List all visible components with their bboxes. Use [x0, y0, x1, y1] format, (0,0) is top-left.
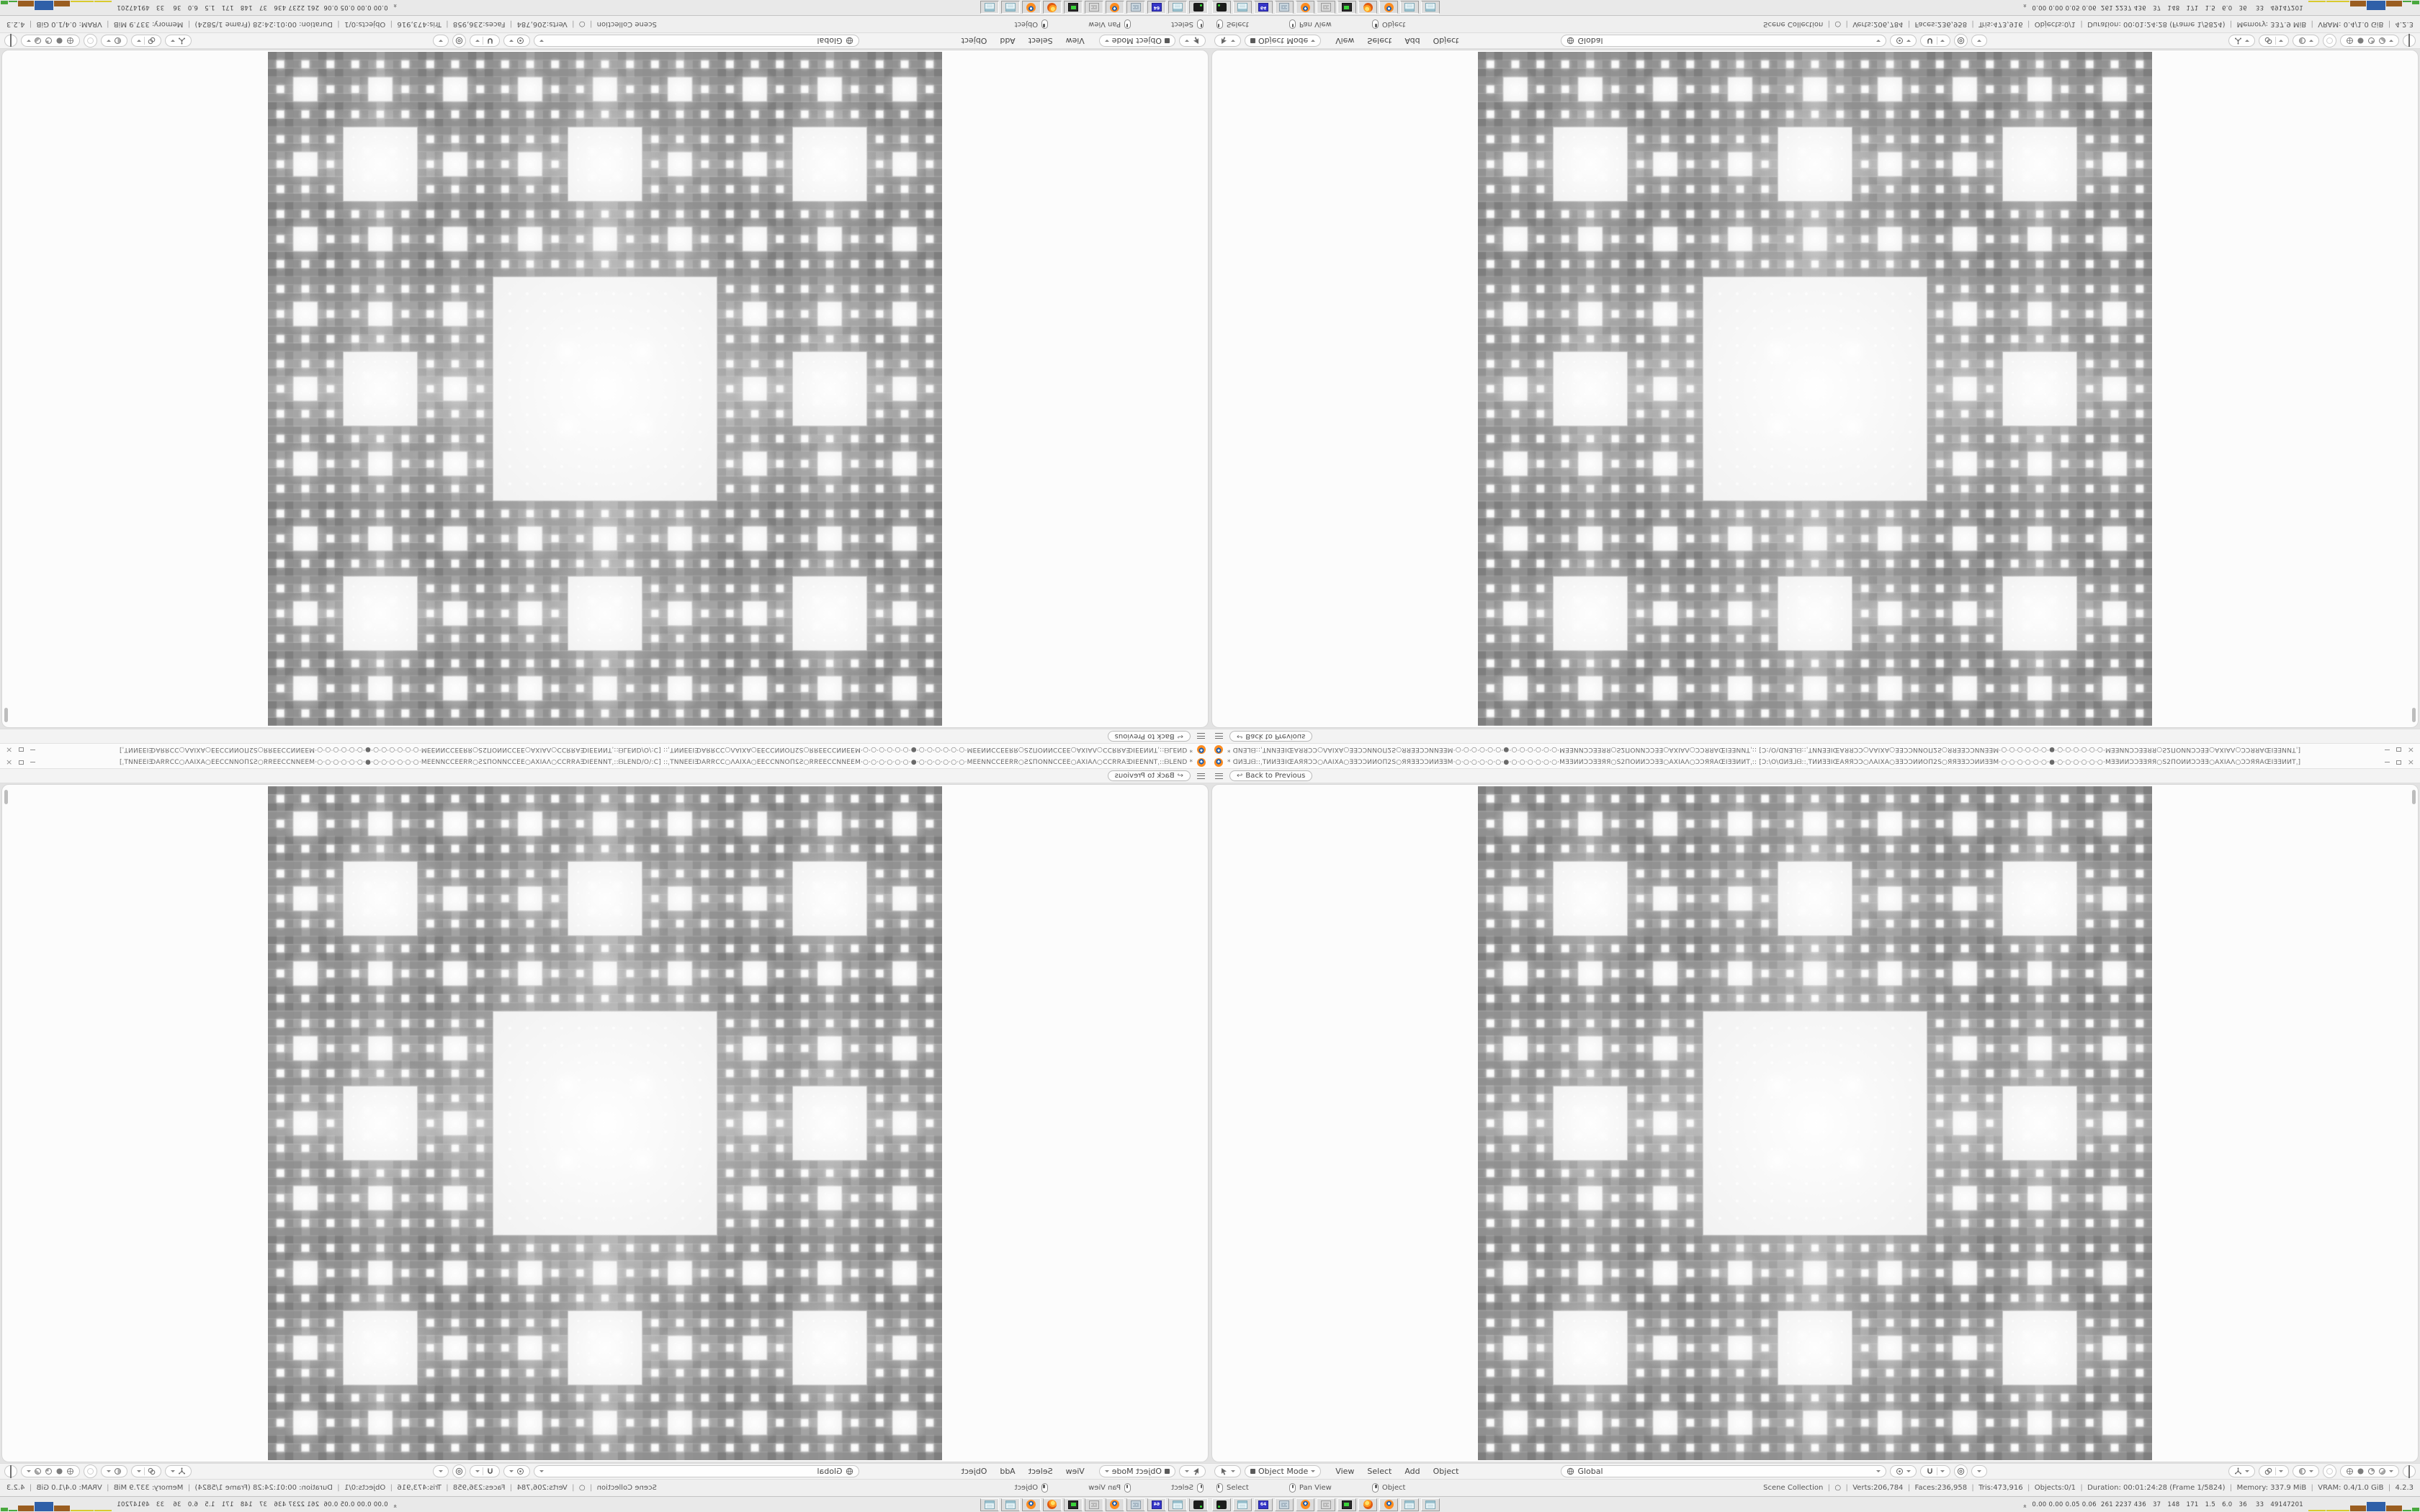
- back-arrow-icon: ↩: [1178, 733, 1183, 740]
- hamburger-menu-icon[interactable]: [1215, 734, 1223, 739]
- calculator-grey-icon: [1321, 1500, 1331, 1509]
- taskbar-calculator-blue-button[interactable]: [1126, 1498, 1145, 1511]
- profiler-bar: [71, 1510, 94, 1511]
- mouse-hint-select: Select: [1216, 19, 1249, 29]
- close-button[interactable]: ×: [2408, 747, 2414, 754]
- xray-dropdown[interactable]: [2293, 1465, 2319, 1477]
- recorder-dark-icon: [1216, 1500, 1227, 1509]
- overlays-dropdown[interactable]: [131, 1465, 161, 1477]
- recorder-dark-icon: [1193, 4, 1204, 12]
- taskbar-calculator-grey-button[interactable]: [1085, 1, 1103, 14]
- overlays-dropdown[interactable]: [131, 35, 161, 47]
- pivot-point-dropdown[interactable]: [1890, 1465, 1917, 1477]
- editor-pause-button[interactable]: [4, 1465, 17, 1477]
- maximize-button[interactable]: [19, 760, 24, 765]
- back-to-previous-button[interactable]: ↩ Back to Previous: [1229, 770, 1312, 781]
- taskbar-blender-button[interactable]: [1022, 1, 1041, 14]
- orientation-dropdown[interactable]: Global: [534, 35, 859, 47]
- orientation-label: Global: [1577, 36, 1603, 45]
- orientation-globe-icon: [846, 37, 853, 45]
- back-to-previous-button[interactable]: ↩ Back to Previous: [1229, 731, 1312, 742]
- taskbar-apps: 64: [1212, 1498, 1440, 1511]
- mouse-hint-label: Pan View: [1299, 1484, 1332, 1492]
- profiler-bar: [54, 1506, 70, 1511]
- taskbar-floppy-64-button[interactable]: 64: [1147, 1498, 1166, 1511]
- taskbar-notepad-button[interactable]: [980, 1498, 999, 1511]
- hamburger-menu-icon[interactable]: [1197, 734, 1205, 739]
- snap-magnet-icon: [486, 37, 494, 45]
- proportional-editing-toggle[interactable]: [452, 1464, 466, 1478]
- viewport-menus: ViewSelectAddObject: [1329, 36, 1465, 45]
- profiler-overlay: » 0.00 0.00 0.05 0.06 261 2237 436 37 14…: [2, 1498, 397, 1511]
- profiler-bar: [1, 1508, 8, 1511]
- status-stat: Verts:206,784: [517, 1484, 579, 1492]
- taskbar-calculator-blue-button[interactable]: [1275, 1, 1294, 14]
- taskbar-system-monitor-button[interactable]: [1064, 1, 1083, 14]
- active-tool-button[interactable]: [1214, 35, 1241, 47]
- pivot-point-dropdown[interactable]: [1890, 35, 1917, 47]
- system-monitor-icon: [1068, 4, 1078, 12]
- status-stat: Duration: 00:01:24:28 (Frame 1/5824): [194, 1484, 344, 1492]
- taskbar-floppy-64-button[interactable]: 64: [1254, 1, 1273, 14]
- minimize-button[interactable]: [2385, 762, 2390, 762]
- profiler-values: 0.00 0.00 0.05 0.06 261 2237 436 37 148 …: [2032, 1, 2303, 14]
- viewport-menus: ViewSelectAddObject: [1329, 1467, 1465, 1476]
- proportional-editing-toggle[interactable]: [1954, 34, 1968, 48]
- pivot-point-dropdown[interactable]: [503, 35, 530, 47]
- tweak-tool-icon: [1192, 1467, 1200, 1475]
- chevron-down-icon: [509, 40, 514, 42]
- system-monitor-icon: [1342, 1500, 1352, 1509]
- overlays-dropdown[interactable]: [2259, 35, 2289, 47]
- shading-mode-group[interactable]: [21, 1465, 80, 1477]
- close-button[interactable]: ×: [6, 759, 12, 766]
- viewport-3d[interactable]: [1211, 784, 2419, 1462]
- blender-topbar: ↩ Back to Previous: [1210, 769, 2420, 783]
- taskbar-firefox-button[interactable]: [1358, 1498, 1377, 1511]
- viewport-3d[interactable]: [1, 784, 1209, 1462]
- notepad-icon: [985, 4, 995, 12]
- shading-mode-group[interactable]: [2340, 35, 2399, 47]
- profiler-bar: [2326, 1, 2349, 3]
- orientation-dropdown[interactable]: Global: [1561, 1465, 1886, 1477]
- profiler-bar-chart: [2308, 1500, 2416, 1511]
- status-stat: ○: [579, 20, 597, 28]
- menu-add[interactable]: Add: [1398, 1467, 1426, 1476]
- status-bar: SelectPan ViewObject Scene Collection○Ve…: [1210, 16, 2420, 33]
- mouse-right-button-icon: [1372, 19, 1379, 29]
- mouse-middle-button-icon: [1124, 1483, 1131, 1493]
- taskbar-firefox-button[interactable]: [1358, 1, 1377, 14]
- mode-label: Object Mode: [1112, 1467, 1162, 1476]
- overlays-dropdown[interactable]: [2259, 1465, 2289, 1477]
- mouse-hint-object: Object: [1372, 1483, 1406, 1493]
- mode-dropdown[interactable]: Object Mode: [1099, 1465, 1175, 1477]
- snapping-dropdown[interactable]: [1920, 1465, 1950, 1477]
- snap-magnet-icon: [486, 1467, 494, 1475]
- proportional-editing-toggle[interactable]: [452, 34, 466, 48]
- blender-icon: [1301, 1500, 1310, 1509]
- taskbar-notepad-button[interactable]: [1001, 1, 1020, 14]
- profiler-values: 0.00 0.00 0.05 0.06 261 2237 436 37 148 …: [117, 1498, 388, 1511]
- gizmos-dropdown[interactable]: [165, 35, 192, 47]
- blender-logo-icon: [1214, 758, 1223, 767]
- taskbar-blender-button[interactable]: [1379, 1498, 1398, 1511]
- viewport-3d[interactable]: [1211, 50, 2419, 728]
- status-bar: SelectPan ViewObject Scene Collection○Ve…: [0, 1479, 1210, 1496]
- viewport-menus: ViewSelectAddObject: [955, 36, 1091, 45]
- menu-select[interactable]: Select: [1361, 36, 1398, 45]
- minimize-button[interactable]: [2385, 750, 2390, 750]
- blender-logo-icon: [1214, 746, 1223, 755]
- viewport-scrollbar[interactable]: [4, 790, 8, 804]
- viewport-scrollbar[interactable]: [2412, 790, 2416, 804]
- status-stat: Verts:206,784: [1841, 20, 1903, 28]
- menu-view[interactable]: View: [1329, 1467, 1361, 1476]
- floppy-64-icon: 64: [1152, 1500, 1162, 1509]
- material-preview-icon: [45, 1467, 53, 1475]
- mouse-hint-object: Object: [1015, 1483, 1049, 1493]
- tweak-tool-icon: [1192, 37, 1200, 45]
- pivot-point-dropdown[interactable]: [503, 1465, 530, 1477]
- snapping-dropdown[interactable]: [1920, 35, 1950, 47]
- taskbar-apps: 64: [1212, 1, 1440, 14]
- mouse-hint-label: Pan View: [1088, 1484, 1121, 1492]
- firefox-icon: [1048, 3, 1057, 12]
- taskbar-blender-button[interactable]: [1106, 1, 1124, 14]
- menu-view[interactable]: View: [1329, 36, 1361, 45]
- back-to-previous-button[interactable]: ↩ Back to Previous: [1108, 731, 1191, 742]
- blender-icon: [1027, 1500, 1036, 1509]
- chevron-down-icon: [27, 1470, 31, 1472]
- notepad-icon: [1237, 1500, 1247, 1509]
- taskbar-notepad-button[interactable]: [1400, 1, 1419, 14]
- menu-add[interactable]: Add: [1398, 36, 1426, 45]
- mouse-hint-label: Object: [1382, 20, 1406, 28]
- proportional-falloff-dropdown[interactable]: [1971, 1465, 1987, 1477]
- maximize-button[interactable]: [2396, 748, 2401, 752]
- chevron-down-icon: [1185, 1470, 1189, 1472]
- taskbar-notepad-button[interactable]: [1168, 1, 1187, 14]
- shading-mode-group[interactable]: [21, 35, 80, 47]
- chevron-down-icon: [2279, 40, 2283, 42]
- mouse-hint-label: Pan View: [1088, 20, 1121, 28]
- firefox-icon: [1048, 1500, 1057, 1509]
- menu-add[interactable]: Add: [993, 1467, 1021, 1476]
- menu-view[interactable]: View: [1059, 1467, 1091, 1476]
- xray-toggle[interactable]: [84, 1464, 97, 1478]
- blender-icon: [1111, 1500, 1120, 1509]
- object-mode-icon: [1165, 1469, 1170, 1474]
- chevrons-up-icon: »: [2020, 4, 2030, 9]
- taskbar-calculator-grey-button[interactable]: [1317, 1, 1335, 14]
- close-button[interactable]: ×: [2408, 759, 2414, 766]
- hamburger-menu-icon[interactable]: [1215, 773, 1223, 779]
- mode-dropdown[interactable]: Object Mode: [1099, 35, 1175, 47]
- xray-toggle[interactable]: [2323, 1464, 2336, 1478]
- mouse-hint-label: Object: [1015, 20, 1039, 28]
- taskbar-notepad-button[interactable]: [1001, 1498, 1020, 1511]
- mouse-hint-label: Select: [1171, 20, 1193, 28]
- wireframe-shading-icon: [2346, 1467, 2354, 1475]
- blender-icon: [1301, 3, 1310, 12]
- profiler-bar: [54, 1, 70, 7]
- active-tool-button[interactable]: [1179, 35, 1206, 47]
- status-stat: Tris:473,916: [1967, 20, 2023, 28]
- shading-mode-group[interactable]: [2340, 1465, 2399, 1477]
- status-stat: Duration: 00:01:24:28 (Frame 1/5824): [194, 20, 344, 28]
- orientation-globe-icon: [846, 1467, 853, 1475]
- blender-icon: [1384, 1500, 1394, 1509]
- viewport-header: Object Mode ViewSelectAddObject Global: [0, 33, 1210, 49]
- chevron-down-icon: [171, 40, 175, 42]
- proportional-editing-toggle[interactable]: [1954, 1464, 1968, 1478]
- proportional-falloff-dropdown[interactable]: [1971, 35, 1987, 47]
- taskbar-system-monitor-button[interactable]: [1337, 1498, 1356, 1511]
- viewport-menus: ViewSelectAddObject: [955, 1467, 1091, 1476]
- proportional-falloff-dropdown[interactable]: [433, 1465, 449, 1477]
- gizmo-icon: [178, 1467, 186, 1475]
- xray-toggle[interactable]: [84, 34, 97, 48]
- chevron-down-icon: [27, 40, 31, 42]
- menu-select[interactable]: Select: [1022, 36, 1059, 45]
- close-button[interactable]: ×: [6, 747, 12, 754]
- profiler-bar: [2367, 1502, 2385, 1511]
- mouse-hint-select: Select: [1171, 19, 1204, 29]
- chevron-down-icon: [475, 1470, 480, 1472]
- menu-view[interactable]: View: [1059, 36, 1091, 45]
- mouse-hint-label: Object: [1382, 1484, 1406, 1492]
- taskbar-calculator-blue-button[interactable]: [1126, 1, 1145, 14]
- mouse-hints: SelectPan ViewObject: [974, 1483, 1204, 1493]
- status-stat: Tris:473,916: [397, 20, 453, 28]
- taskbar-calculator-grey-button[interactable]: [1085, 1498, 1103, 1511]
- menu-object[interactable]: Object: [1427, 36, 1466, 45]
- window-titlebar: * ᗡИƎ⅃ᗺ::ˌTИИƎƎIŒAЯЯƆƆ○ΛAIXA○ƎƎƆƆИИOΠ2S○…: [0, 756, 1210, 769]
- chevron-down-icon: [1311, 40, 1315, 42]
- taskbar-notepad-button[interactable]: [1233, 1498, 1252, 1511]
- status-stat: Duration: 00:01:24:28 (Frame 1/5824): [2076, 20, 2226, 28]
- minimize-button[interactable]: [30, 750, 35, 750]
- profiler-bar-chart: [4, 1, 112, 13]
- window-titlebar: * ᗡИƎ⅃ᗺ::ˌTИИƎƎIŒAЯЯƆƆ○ΛAIXA○ƎƎƆƆИИOΠ2S○…: [1210, 756, 2420, 769]
- profiler-overlay: » 0.00 0.00 0.05 0.06 261 2237 436 37 14…: [2023, 1, 2418, 14]
- xray-toggle[interactable]: [2323, 34, 2336, 48]
- taskbar-notepad-button[interactable]: [1400, 1498, 1419, 1511]
- taskbar-blender-button[interactable]: [1296, 1498, 1314, 1511]
- mouse-hint-pan-view: Pan View: [1088, 1483, 1131, 1493]
- taskbar-system-monitor-button[interactable]: [1064, 1498, 1083, 1511]
- taskbar-recorder-dark-button[interactable]: [1189, 1, 1208, 14]
- status-stat: Memory: 337.9 MiB: [114, 1484, 195, 1492]
- object-mode-icon: [1250, 1469, 1255, 1474]
- back-to-previous-label: Back to Previous: [1115, 732, 1175, 740]
- notepad-icon: [1005, 1500, 1016, 1509]
- window-titlebar: * ᗡИƎ⅃ᗺ::ˌTИИƎƎIŒAЯЯƆƆ○ΛAIXA○ƎƎƆƆИИOΠ2S○…: [0, 743, 1210, 756]
- menu-select[interactable]: Select: [1022, 1467, 1059, 1476]
- back-to-previous-button[interactable]: ↩ Back to Previous: [1108, 770, 1191, 781]
- taskbar-blender-button[interactable]: [1296, 1, 1314, 14]
- mouse-middle-button-icon: [1124, 19, 1131, 29]
- gizmo-icon: [2234, 1467, 2242, 1475]
- mouse-hints: SelectPan ViewObject: [1216, 1483, 1446, 1493]
- mouse-hints: SelectPan ViewObject: [1216, 19, 1446, 29]
- blender-icon: [1384, 3, 1394, 12]
- viewport-workspace: [1210, 49, 2420, 729]
- window-title: * ᗡИƎ⅃ᗺ::ˌTИИƎƎIŒAЯЯƆƆ○ΛAIXA○ƎƎƆƆИИOΠ2S○…: [1227, 759, 2380, 766]
- snapping-dropdown[interactable]: [470, 35, 500, 47]
- mouse-hint-select: Select: [1216, 1483, 1249, 1493]
- taskbar-notepad-button[interactable]: [1421, 1498, 1440, 1511]
- status-stat: 4.2.3: [2383, 1484, 2414, 1492]
- back-arrow-icon: ↩: [1178, 773, 1183, 780]
- menu-add[interactable]: Add: [993, 36, 1021, 45]
- profiler-bar: [9, 1510, 17, 1511]
- taskbar-notepad-button[interactable]: [1421, 1, 1440, 14]
- menu-object[interactable]: Object: [955, 36, 994, 45]
- taskbar-system-monitor-button[interactable]: [1337, 1, 1356, 14]
- taskbar-calculator-grey-button[interactable]: [1317, 1498, 1335, 1511]
- orientation-label: Global: [1577, 1467, 1603, 1476]
- xray-dropdown[interactable]: [101, 35, 127, 47]
- snapping-dropdown[interactable]: [470, 1465, 500, 1477]
- mouse-hint-pan-view: Pan View: [1289, 1483, 1332, 1493]
- mode-dropdown[interactable]: Object Mode: [1245, 35, 1321, 47]
- scene-statistics: Scene Collection○Verts:206,784Faces:236,…: [6, 20, 657, 28]
- status-stat: VRAM: 0.4/1.0 GiB: [2306, 20, 2383, 28]
- taskbar-recorder-dark-button[interactable]: [1189, 1498, 1208, 1511]
- orientation-globe-icon: [1567, 1467, 1574, 1475]
- rendered-shading-icon: [2378, 37, 2386, 45]
- chevron-down-icon: [1876, 1470, 1881, 1472]
- status-stat: Verts:206,784: [1841, 1484, 1903, 1492]
- orientation-globe-icon: [1567, 37, 1574, 45]
- xray-dropdown[interactable]: [101, 1465, 127, 1477]
- taskbar-apps: 64: [980, 1498, 1208, 1511]
- status-stat: Tris:473,916: [1967, 1484, 2023, 1492]
- taskbar-firefox-button[interactable]: [1043, 1, 1062, 14]
- window-title: * ᗡИƎ⅃ᗺ::ˌTИИƎƎIŒAЯЯƆƆ○ΛAIXA○ƎƎƆƆИИOΠ2S○…: [1227, 747, 2380, 754]
- calculator-grey-icon: [1089, 4, 1099, 12]
- active-tool-button[interactable]: [1214, 1465, 1241, 1477]
- maximize-button[interactable]: [2396, 760, 2401, 765]
- gizmos-dropdown[interactable]: [165, 1465, 192, 1477]
- back-arrow-icon: ↩: [1237, 733, 1242, 740]
- tweak-tool-icon: [1220, 1467, 1228, 1475]
- status-stat: ○: [1823, 20, 1841, 28]
- chevrons-up-icon: »: [390, 1504, 400, 1508]
- chevron-down-icon: [2309, 1470, 2313, 1472]
- taskbar-recorder-dark-button[interactable]: [1212, 1498, 1231, 1511]
- taskbar-floppy-64-button[interactable]: 64: [1147, 1, 1166, 14]
- profiler-bar: [94, 1510, 112, 1511]
- blender-topbar: ↩ Back to Previous: [0, 769, 1210, 783]
- taskbar-blender-button[interactable]: [1106, 1498, 1124, 1511]
- orientation-label: Global: [817, 36, 842, 45]
- taskbar-calculator-blue-button[interactable]: [1275, 1498, 1294, 1511]
- xray-dropdown[interactable]: [2293, 35, 2319, 47]
- chevron-down-icon: [1906, 40, 1911, 42]
- mouse-hint-object: Object: [1372, 19, 1406, 29]
- status-stat: Duration: 00:01:24:28 (Frame 1/5824): [2076, 1484, 2226, 1492]
- taskbar-floppy-64-button[interactable]: 64: [1254, 1498, 1273, 1511]
- chevron-down-icon: [1876, 40, 1881, 42]
- profiler-bar: [1, 1, 8, 5]
- gizmos-dropdown[interactable]: [2228, 1465, 2255, 1477]
- recorder-dark-icon: [1193, 1500, 1204, 1509]
- xray-circle-icon: [86, 1467, 94, 1475]
- taskbar-notepad-button[interactable]: [980, 1, 999, 14]
- gizmos-dropdown[interactable]: [2228, 35, 2255, 47]
- mode-dropdown[interactable]: Object Mode: [1245, 1465, 1321, 1477]
- mouse-hint-label: Pan View: [1299, 20, 1332, 28]
- calculator-blue-icon: [1131, 1500, 1141, 1509]
- window-controls: ×: [4, 759, 35, 766]
- taskbar-blender-button[interactable]: [1379, 1, 1398, 14]
- object-mode-icon: [1165, 38, 1170, 43]
- chevron-down-icon: [107, 40, 111, 42]
- hamburger-menu-icon[interactable]: [1197, 773, 1205, 779]
- notepad-icon: [1005, 4, 1016, 12]
- taskbar-notepad-button[interactable]: [1233, 1, 1252, 14]
- profiler-bar: [9, 1, 17, 3]
- active-tool-button[interactable]: [1179, 1465, 1206, 1477]
- status-stat: Objects:0/1: [344, 1484, 397, 1492]
- profiler-bar: [2326, 1510, 2349, 1511]
- editor-pause-button[interactable]: [4, 35, 17, 47]
- proportional-editing-icon: [455, 37, 463, 45]
- menu-select[interactable]: Select: [1361, 1467, 1398, 1476]
- minimize-button[interactable]: [30, 762, 35, 762]
- editor-pause-button[interactable]: [2403, 35, 2416, 47]
- editor-pause-button[interactable]: [2403, 1465, 2416, 1477]
- chevron-down-icon: [171, 1470, 175, 1472]
- mouse-left-button-icon: [1197, 1483, 1204, 1493]
- profiler-bar: [18, 1506, 34, 1511]
- taskbar-blender-button[interactable]: [1022, 1498, 1041, 1511]
- mouse-hint-label: Select: [1171, 1484, 1193, 1492]
- mouse-hints: SelectPan ViewObject: [974, 19, 1204, 29]
- taskbar-recorder-dark-button[interactable]: [1212, 1, 1231, 14]
- menu-object[interactable]: Object: [1427, 1467, 1466, 1476]
- tweak-tool-icon: [1220, 37, 1228, 45]
- chevron-down-icon: [107, 1470, 111, 1472]
- orientation-dropdown[interactable]: Global: [534, 1465, 859, 1477]
- chevrons-up-icon: »: [2020, 1504, 2030, 1508]
- taskbar-firefox-button[interactable]: [1043, 1498, 1062, 1511]
- orientation-dropdown[interactable]: Global: [1561, 35, 1886, 47]
- os-taskbar: 64 » 0.00 0.00 0.05 0.06 261 2237 436 37…: [1210, 1496, 2420, 1512]
- proportional-falloff-dropdown[interactable]: [433, 35, 449, 47]
- profiler-bar: [71, 1, 94, 3]
- taskbar-notepad-button[interactable]: [1168, 1498, 1187, 1511]
- blender-topbar: ↩ Back to Previous: [1210, 729, 2420, 743]
- viewport-workspace: [0, 783, 1210, 1463]
- xray-icon: [114, 37, 122, 45]
- viewport-scrollbar[interactable]: [4, 708, 8, 722]
- menu-object[interactable]: Object: [955, 1467, 994, 1476]
- wireframe-shading-icon: [2346, 37, 2354, 45]
- maximize-button[interactable]: [19, 748, 24, 752]
- chevron-down-icon: [1940, 1470, 1945, 1472]
- snap-magnet-icon: [1926, 1467, 1934, 1475]
- menger-carpet-render: [1478, 786, 2152, 1460]
- status-stat: Tris:473,916: [397, 1484, 453, 1492]
- viewport-scrollbar[interactable]: [2412, 708, 2416, 722]
- viewport-3d[interactable]: [1, 50, 1209, 728]
- status-stat: 4.2.3: [2383, 20, 2414, 28]
- calculator-blue-icon: [1279, 1500, 1289, 1509]
